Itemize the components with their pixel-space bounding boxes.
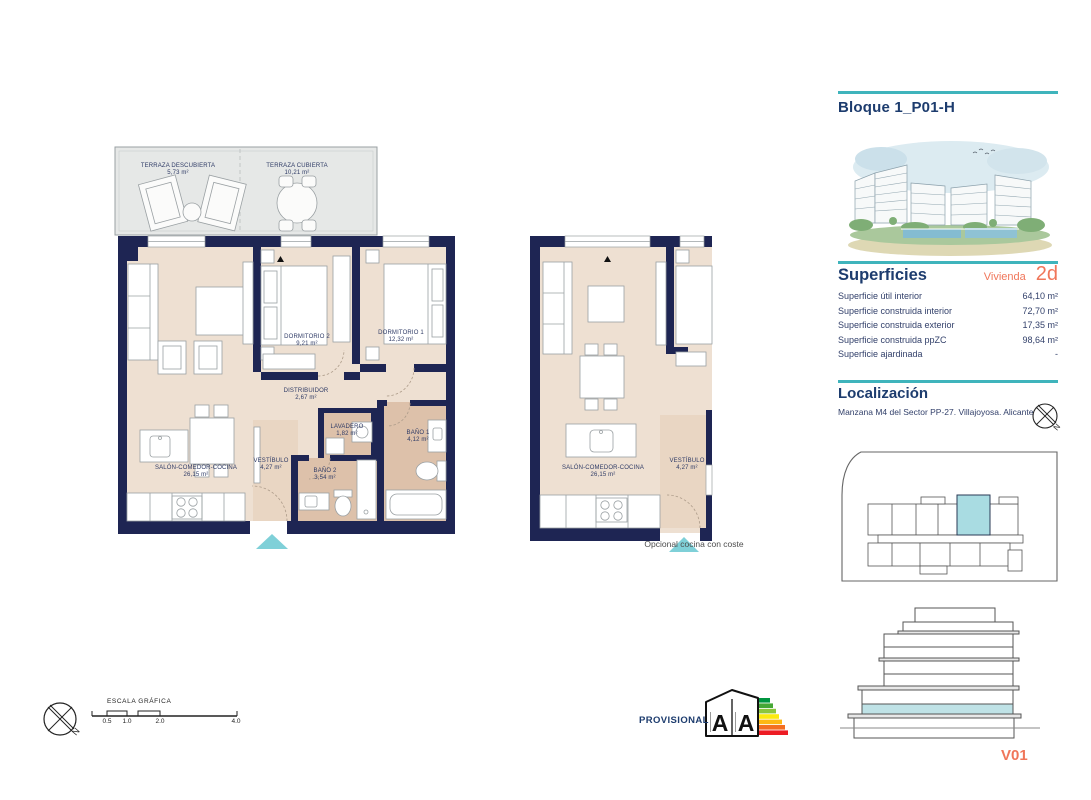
room-name: DISTRIBUIDOR bbox=[284, 388, 329, 395]
variant-floor-plan bbox=[530, 236, 712, 552]
row-value: - bbox=[1055, 349, 1058, 364]
room-area: 9,21 m² bbox=[284, 341, 330, 348]
north-compass-sidebar: N bbox=[1033, 404, 1062, 432]
main-floor-plan bbox=[115, 147, 455, 549]
scale-tick: 4.0 bbox=[231, 718, 240, 725]
room-label-distribuidor: DISTRIBUIDOR 2,67 m² bbox=[284, 388, 329, 402]
entrance-opening bbox=[250, 521, 287, 534]
row-label: Superficie ajardinada bbox=[838, 349, 923, 364]
provisional-label: PROVISIONAL bbox=[639, 715, 709, 726]
variant-room-label-vestibulo: VESTÍBULO 4,27 m² bbox=[669, 458, 704, 472]
energy-letter-right: A bbox=[738, 710, 755, 736]
table-row: Superficie útil interior 64,10 m² bbox=[838, 291, 1058, 306]
terrace bbox=[115, 147, 377, 235]
divider-rule bbox=[838, 380, 1058, 383]
room-area: 26,15 m² bbox=[562, 472, 644, 479]
room-area: 1,82 m² bbox=[331, 431, 364, 438]
room-area: 4,27 m² bbox=[253, 465, 288, 472]
energy-rating-icon: A A bbox=[706, 690, 788, 736]
table-row: Superficie construida ppZC 98,64 m² bbox=[838, 335, 1058, 350]
superficies-heading: Superficies bbox=[838, 266, 984, 285]
row-label: Superficie construida ppZC bbox=[838, 335, 947, 350]
room-name: VESTÍBULO bbox=[253, 458, 288, 465]
room-area: 3,54 m² bbox=[314, 475, 337, 482]
room-label-dormitorio-1: DORMITORIO 1 12,32 m² bbox=[378, 330, 424, 344]
room-area: 4,27 m² bbox=[669, 465, 704, 472]
room-name: LAVADERO bbox=[331, 424, 364, 431]
north-label: N bbox=[1052, 422, 1063, 432]
table-row: Superficie ajardinada - bbox=[838, 349, 1058, 364]
scale-tick: 2.0 bbox=[155, 718, 164, 725]
table-row: Superficie construida interior 72,70 m² bbox=[838, 306, 1058, 321]
variant-caption: Opcional cocina con coste bbox=[644, 539, 743, 549]
room-name: SALÓN-COMEDOR-COCINA bbox=[562, 465, 644, 472]
page-title: Bloque 1_P01-H bbox=[838, 99, 955, 116]
room-label-lavadero: LAVADERO 1,82 m² bbox=[331, 424, 364, 438]
room-label-vestibulo: VESTÍBULO 4,27 m² bbox=[253, 458, 288, 472]
north-label: N bbox=[70, 726, 82, 737]
room-area: 4,12 m² bbox=[407, 437, 430, 444]
room-area: 26,15 m² bbox=[155, 472, 237, 479]
terrace-furniture bbox=[138, 175, 317, 231]
room-area: 5,73 m² bbox=[141, 170, 215, 177]
room-name: DORMITORIO 1 bbox=[378, 330, 424, 337]
room-area: 10,21 m² bbox=[266, 170, 328, 177]
room-name: SALÓN-COMEDOR-COCINA bbox=[155, 465, 237, 472]
row-label: Superficie útil interior bbox=[838, 291, 922, 306]
room-name: TERRAZA CUBIERTA bbox=[266, 163, 328, 170]
version-label: V01 bbox=[1001, 747, 1028, 764]
room-area: 2,67 m² bbox=[284, 395, 329, 402]
room-name: VESTÍBULO bbox=[669, 458, 704, 465]
unit-type: 2d bbox=[1036, 263, 1058, 286]
highlighted-unit bbox=[957, 495, 990, 535]
room-label-salon: SALÓN-COMEDOR-COCINA 26,15 m² bbox=[155, 465, 237, 479]
room-label-terraza-cubierta: TERRAZA CUBIERTA 10,21 m² bbox=[266, 163, 328, 177]
room-name: BAÑO 1 bbox=[407, 430, 430, 437]
site-plan bbox=[842, 452, 1057, 581]
row-label: Superficie construida interior bbox=[838, 306, 952, 321]
superficies-table: Superficie útil interior 64,10 m² Superf… bbox=[838, 291, 1058, 364]
room-label-dormitorio-2: DORMITORIO 2 9,21 m² bbox=[284, 334, 330, 348]
north-compass-footer: N bbox=[44, 703, 82, 737]
superficies-header: Superficies Vivienda 2d bbox=[838, 263, 1058, 286]
energy-letter-left: A bbox=[712, 710, 729, 736]
scale-tick: 1.0 bbox=[122, 718, 131, 725]
windows bbox=[148, 236, 429, 247]
localizacion-heading: Localización bbox=[838, 385, 928, 402]
room-name: DORMITORIO 2 bbox=[284, 334, 330, 341]
row-value: 64,10 m² bbox=[1022, 291, 1058, 306]
room-label-bano-2: BAÑO 2 3,54 m² bbox=[314, 468, 337, 482]
scale-bar bbox=[92, 711, 237, 716]
room-label-terraza-descubierta: TERRAZA DESCUBIERTA 5,73 m² bbox=[141, 163, 215, 177]
floor-plan-sheet: N N A A TERRAZA DESCUBI bbox=[0, 0, 1091, 800]
row-label: Superficie construida exterior bbox=[838, 320, 955, 335]
room-area: 12,32 m² bbox=[378, 337, 424, 344]
room-name: BAÑO 2 bbox=[314, 468, 337, 475]
row-value: 98,64 m² bbox=[1022, 335, 1058, 350]
building-elevation bbox=[840, 608, 1040, 738]
scale-tick: 0.5 bbox=[102, 718, 111, 725]
table-row: Superficie construida exterior 17,35 m² bbox=[838, 320, 1058, 335]
building-render-image bbox=[848, 141, 1052, 256]
row-value: 72,70 m² bbox=[1022, 306, 1058, 321]
scale-label: ESCALA GRÁFICA bbox=[107, 698, 171, 705]
room-label-bano-1: BAÑO 1 4,12 m² bbox=[407, 430, 430, 444]
entrance-marker bbox=[256, 534, 288, 549]
localizacion-address: Manzana M4 del Sector PP-27. Villajoyosa… bbox=[838, 407, 1033, 417]
divider-rule bbox=[838, 91, 1058, 94]
room-name: TERRAZA DESCUBIERTA bbox=[141, 163, 215, 170]
unit-label: Vivienda bbox=[984, 271, 1026, 283]
row-value: 17,35 m² bbox=[1022, 320, 1058, 335]
variant-room-label-salon: SALÓN-COMEDOR-COCINA 26,15 m² bbox=[562, 465, 644, 479]
